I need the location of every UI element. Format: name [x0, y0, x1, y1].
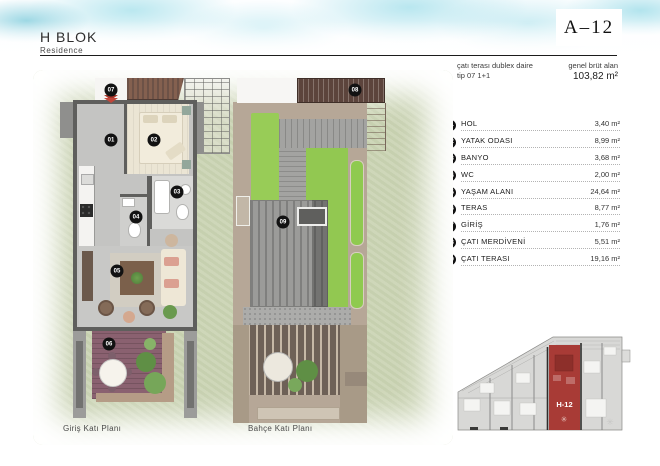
garden-bottom-wall: [249, 395, 340, 407]
room-row: 07GİRİŞ1,76 m²: [445, 218, 620, 235]
concrete-strip: [243, 307, 351, 325]
room-row: 08ÇATI MERDİVENİ5,51 m²: [445, 235, 620, 252]
wall-column: [184, 331, 197, 418]
wall-column: [73, 331, 86, 418]
bathtub: [154, 180, 170, 214]
plan-marker-02: 02: [148, 134, 161, 147]
room-label: ÇATI TERASI: [461, 254, 510, 263]
room-row: 04WC2,00 m²: [445, 167, 620, 184]
interior-wall: [124, 104, 127, 174]
nightstand: [182, 160, 191, 169]
room-label: GİRİŞ: [461, 220, 483, 229]
gross-area-block: genel brüt alan 103,82 m²: [568, 61, 618, 82]
garden-column: [340, 325, 367, 423]
room-row: 06TERAS8,77 m²: [445, 201, 620, 218]
building-nub: [622, 350, 630, 362]
room-label: ÇATI MERDİVENİ: [461, 237, 525, 246]
terrace-rim: [96, 393, 174, 402]
room-area: 5,51 m²: [595, 237, 620, 246]
room-area: 8,77 m²: [595, 203, 620, 212]
room-label: TERAS: [461, 203, 488, 212]
gross-area-value: 103,82 m²: [568, 71, 618, 82]
pillow: [143, 115, 158, 123]
garden-plant: [288, 378, 302, 392]
skylight: [297, 207, 327, 226]
plan-marker-04: 04: [130, 211, 143, 224]
room-table: 01HOL3,40 m²02YATAK ODASI8,99 m²03BANYO3…: [445, 117, 620, 268]
armchair: [139, 300, 155, 316]
plan-marker-01: 01: [105, 134, 118, 147]
bathroom-toilet: [176, 204, 189, 220]
stove: [80, 204, 93, 217]
room-label: HOL: [461, 119, 477, 128]
floor-plan-sheet: H BLOK Residence A–12 çatı terası dublex…: [0, 0, 660, 466]
plan-marker-05: 05: [111, 265, 124, 278]
pouf: [165, 234, 178, 247]
block-title: H BLOK: [40, 29, 97, 45]
highlighted-unit-label: H-12: [556, 400, 572, 409]
sofa: [161, 249, 186, 306]
unit-code-badge: A–12: [556, 9, 622, 46]
plan-marker-08: 08: [349, 84, 362, 97]
nightstand: [182, 106, 191, 115]
terrace-plant: [144, 372, 166, 394]
planter: [350, 252, 364, 309]
header-divider: [40, 55, 617, 56]
room-row: 05YAŞAM ALANI24,64 m²: [445, 184, 620, 201]
plant-star-icon: ✳: [561, 415, 568, 424]
table-plant: [131, 272, 143, 284]
planter: [350, 160, 364, 246]
wc-sink: [122, 198, 135, 207]
side-pouf: [123, 311, 135, 323]
plan-marker-09: 09: [277, 216, 290, 229]
cushion: [164, 257, 179, 266]
plan-marker-07: 07: [105, 84, 118, 97]
room-area: 24,64 m²: [590, 187, 620, 196]
room-area: 1,76 m²: [595, 220, 620, 229]
roof-stairs: [297, 78, 385, 103]
terrace-plant: [144, 338, 156, 350]
garden-table: [263, 352, 293, 382]
kitchen-sink: [81, 174, 94, 185]
garden-bottom-step: [257, 407, 340, 420]
block-brand: H BLOK Residence: [40, 29, 97, 55]
room-area: 3,68 m²: [595, 153, 620, 162]
wc-toilet: [128, 222, 141, 238]
planter-box: [236, 196, 250, 226]
gross-area-label: genel brüt alan: [568, 61, 618, 70]
unit-type-line2: tip 07 1+1: [457, 71, 533, 81]
room-label: BANYO: [461, 153, 489, 162]
block-subtitle: Residence: [40, 46, 97, 55]
garden-column: [233, 325, 249, 423]
plant-star-icon: ✳: [606, 417, 614, 427]
living-plant: [163, 305, 177, 319]
terrace-plant: [136, 352, 156, 372]
media-console: [82, 251, 93, 301]
room-row: 01HOL3,40 m²: [445, 117, 620, 134]
roof-hatch-left: [127, 78, 184, 100]
cushion: [164, 279, 179, 288]
right-plan-label: Bahçe Katı Planı: [248, 424, 312, 433]
room-area: 2,00 m²: [595, 170, 620, 179]
stone-path-vertical: [279, 148, 306, 202]
wall-fin-left: [60, 102, 73, 138]
terrace-table: [99, 359, 127, 387]
room-label: YAŞAM ALANI: [461, 187, 513, 196]
roof-landing: [237, 78, 297, 103]
room-row: 09ÇATI TERASI19,16 m²: [445, 251, 620, 268]
room-row: 03BANYO3,68 m²: [445, 151, 620, 168]
room-row: 02YATAK ODASI8,99 m²: [445, 134, 620, 151]
stone-path-top: [279, 119, 367, 148]
interior-wall: [147, 176, 150, 246]
room-area: 8,99 m²: [595, 136, 620, 145]
left-plan-label: Giriş Katı Planı: [63, 424, 121, 433]
room-label: YATAK ODASI: [461, 136, 513, 145]
room-area: 19,16 m²: [590, 254, 620, 263]
room-label: WC: [461, 170, 474, 179]
unit-type-block: çatı terası dublex daire tip 07 1+1: [457, 61, 533, 81]
plan-marker-06: 06: [103, 338, 116, 351]
plan-marker-03: 03: [171, 186, 184, 199]
pillow: [162, 115, 177, 123]
room-area: 3,40 m²: [595, 119, 620, 128]
armchair: [98, 300, 114, 316]
site-locator-plan: H-12 ✳ ✳: [450, 303, 648, 438]
unit-type-line1: çatı terası dublex daire: [457, 61, 533, 71]
